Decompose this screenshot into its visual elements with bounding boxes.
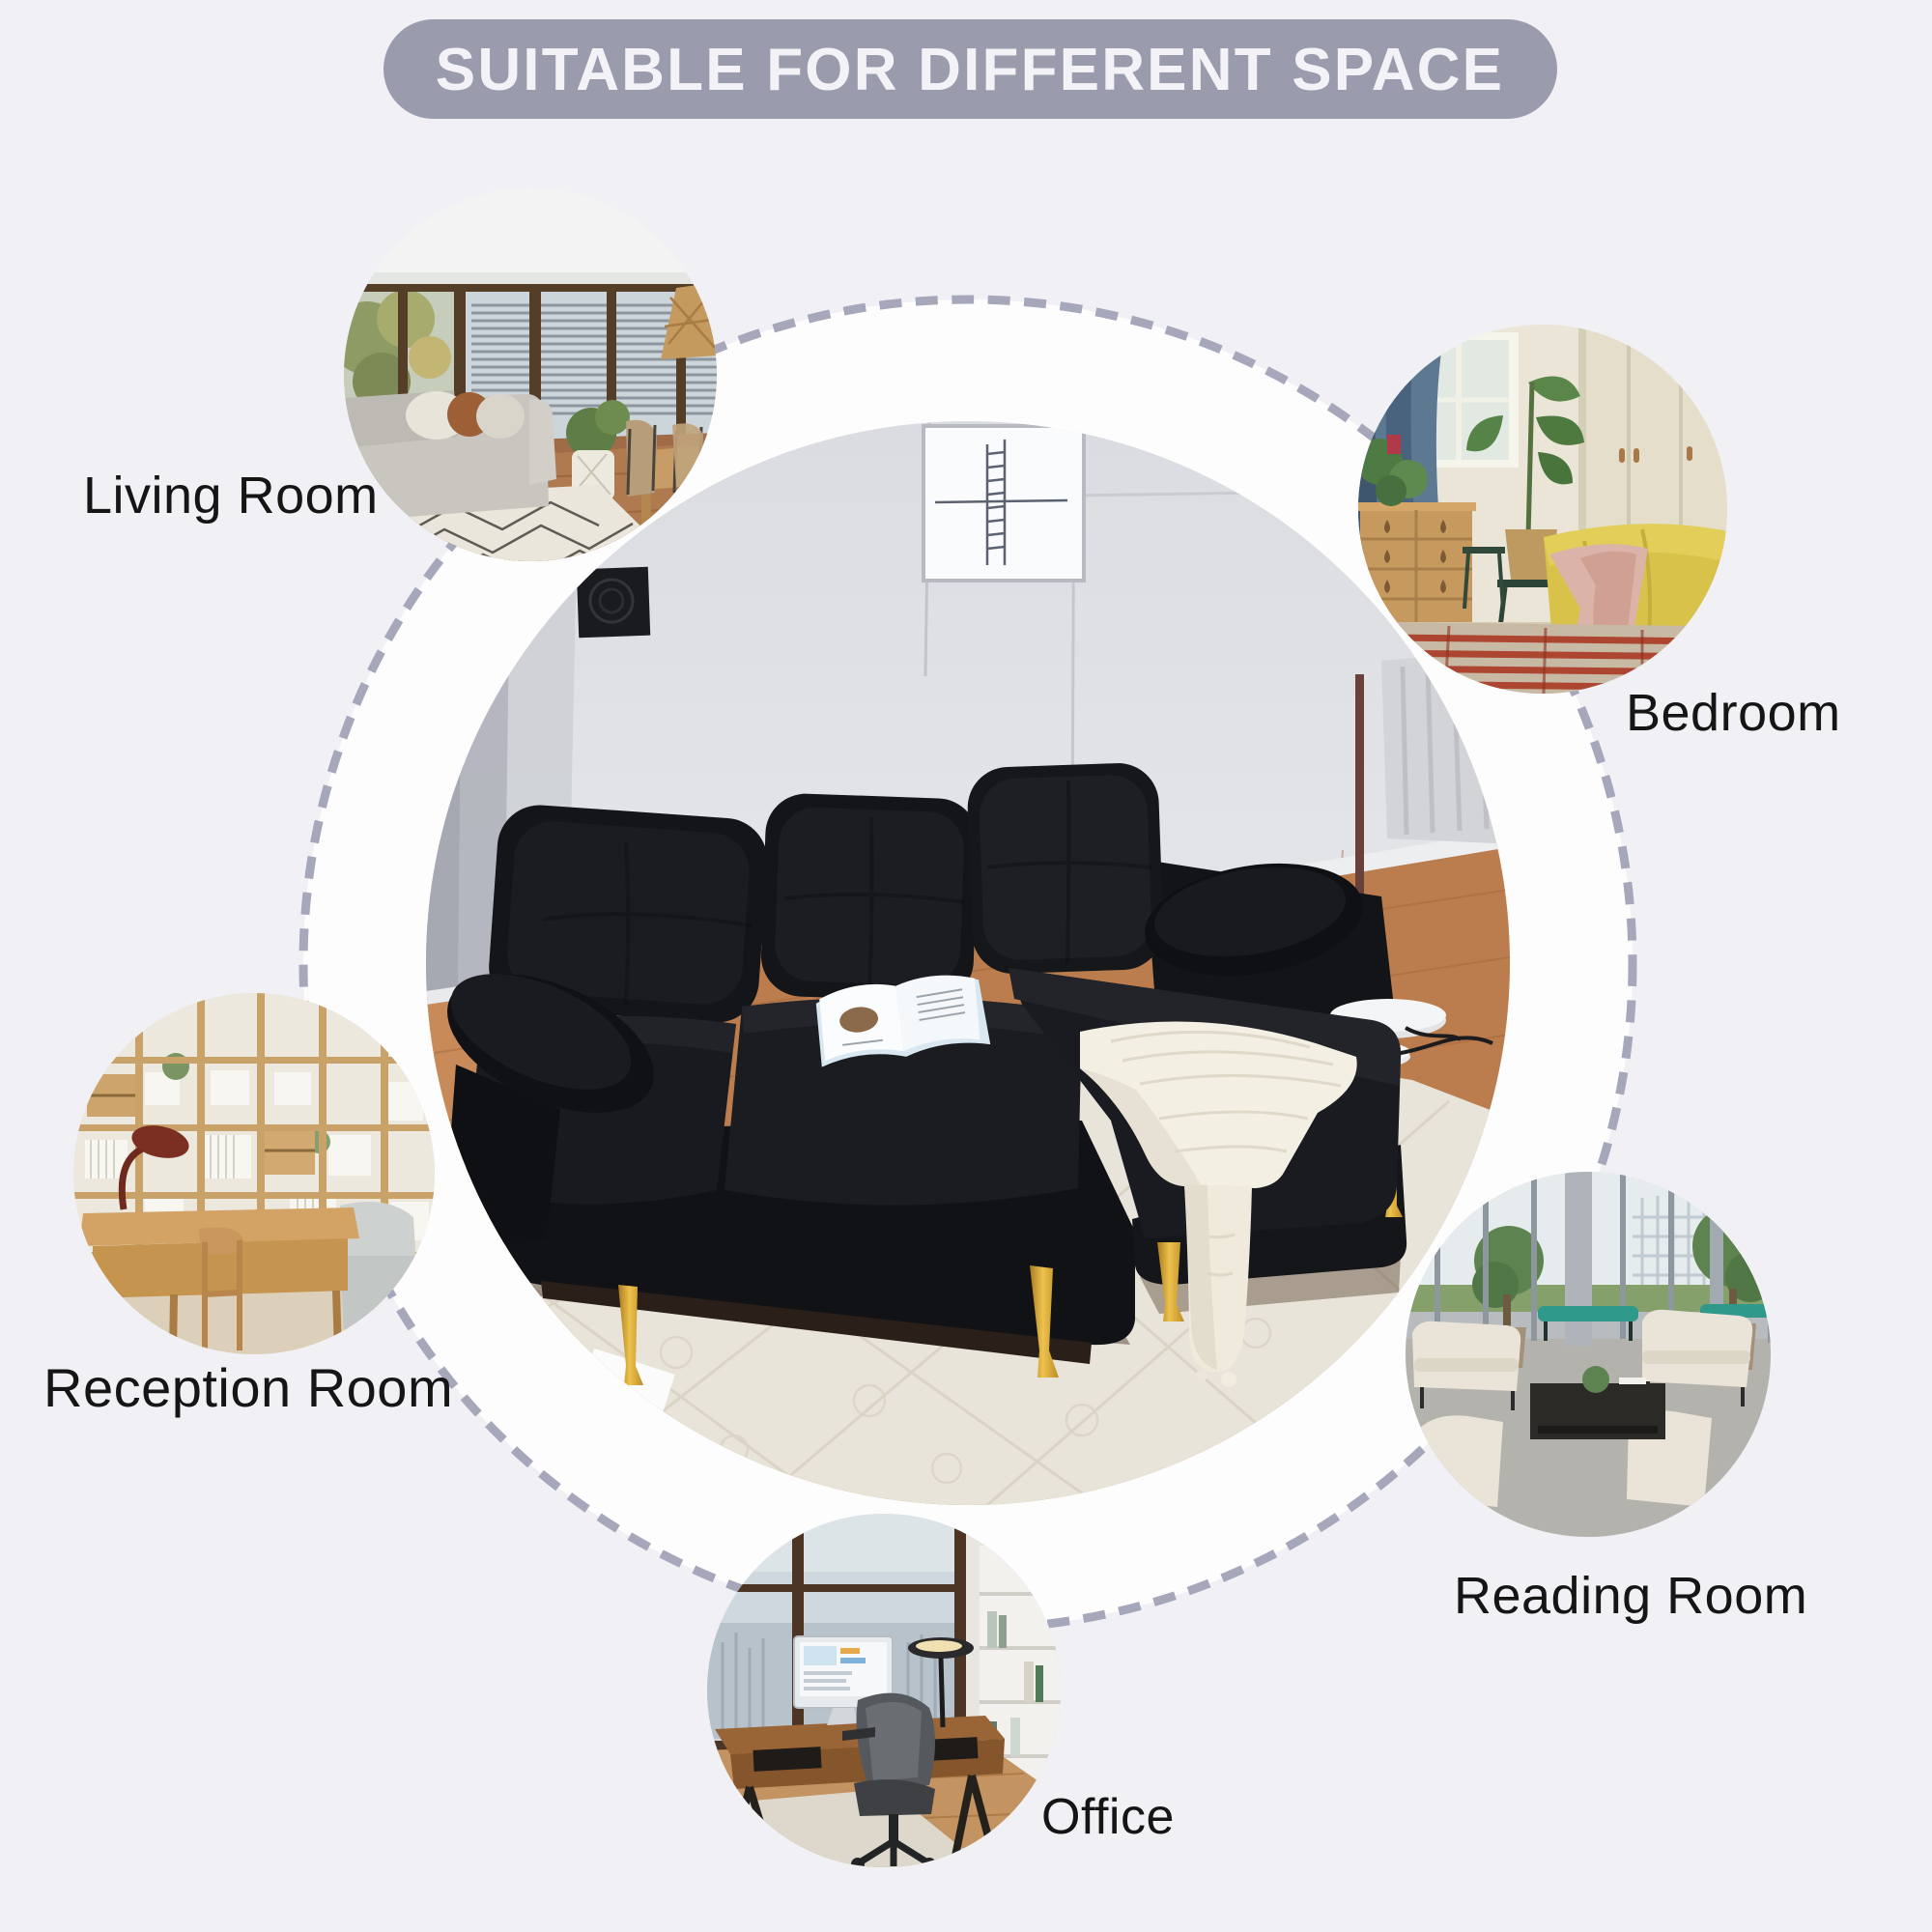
svg-text:Office: Office [1041, 1789, 1175, 1845]
svg-text:Bedroom: Bedroom [1626, 684, 1841, 742]
svg-text:SUITABLE FOR DIFFERENT SPACE: SUITABLE FOR DIFFERENT SPACE [436, 37, 1504, 103]
svg-text:Reception Room: Reception Room [43, 1357, 453, 1418]
svg-text:Reading Room: Reading Room [1454, 1567, 1807, 1625]
svg-text:Living Room: Living Room [83, 467, 379, 525]
